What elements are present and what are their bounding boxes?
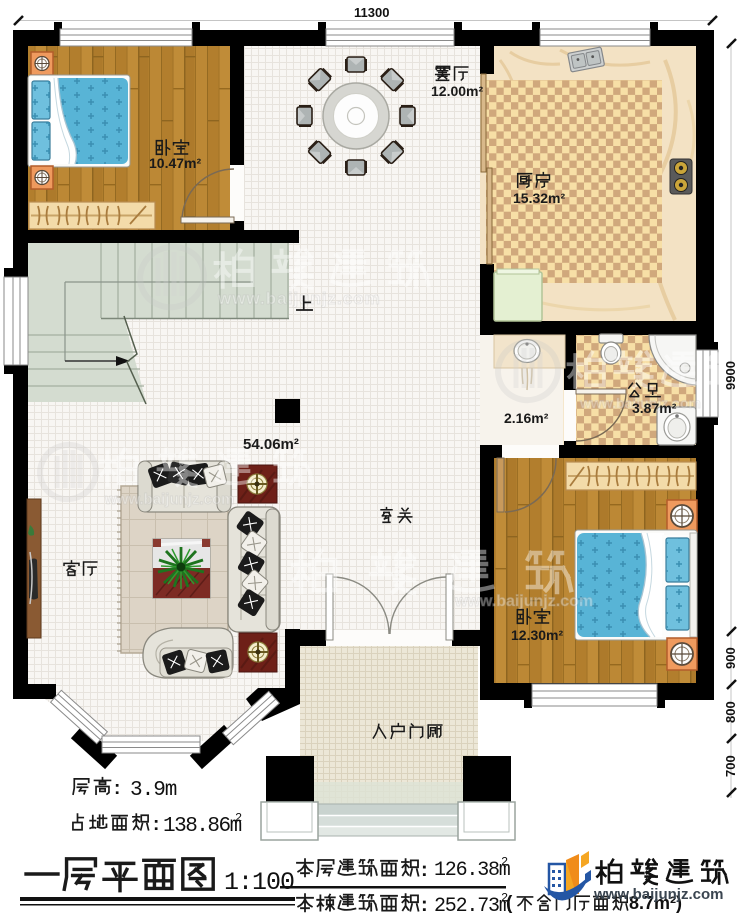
svg-text:12.30m²: 12.30m² [511,627,563,643]
svg-text:2.16m²: 2.16m² [504,410,549,426]
svg-text:9900: 9900 [723,361,738,390]
svg-text:3.87m²: 3.87m² [632,400,677,416]
svg-text:138.86m: 138.86m [163,815,242,838]
svg-text:10.47m²: 10.47m² [149,155,201,171]
svg-text:11300: 11300 [354,5,389,20]
svg-text:(: ( [506,893,513,914]
svg-text:800: 800 [723,701,738,723]
svg-text::: : [153,814,159,835]
svg-text:2: 2 [235,811,242,825]
svg-text::: : [421,859,428,881]
svg-text::: : [421,894,428,916]
svg-text:126.38m: 126.38m [434,859,510,882]
svg-text:www.baijunjz.com: www.baijunjz.com [454,593,593,610]
svg-text:700: 700 [723,755,738,777]
svg-text:900: 900 [723,647,738,669]
svg-text:www.baijunjz.com: www.baijunjz.com [593,886,723,903]
svg-text::: : [114,778,120,799]
svg-text:12.00m²: 12.00m² [431,83,483,99]
svg-text:15.32m²: 15.32m² [513,190,565,206]
svg-text:54.06m²: 54.06m² [243,436,299,453]
svg-text:www.baijunjz.com: www.baijunjz.com [104,491,234,508]
svg-text:www.baijunjz.com: www.baijunjz.com [217,289,381,308]
svg-text:252.73m: 252.73m [434,895,510,918]
svg-text:3.9m: 3.9m [130,779,177,802]
svg-text:2: 2 [501,855,508,869]
svg-text:1:100: 1:100 [224,868,294,897]
